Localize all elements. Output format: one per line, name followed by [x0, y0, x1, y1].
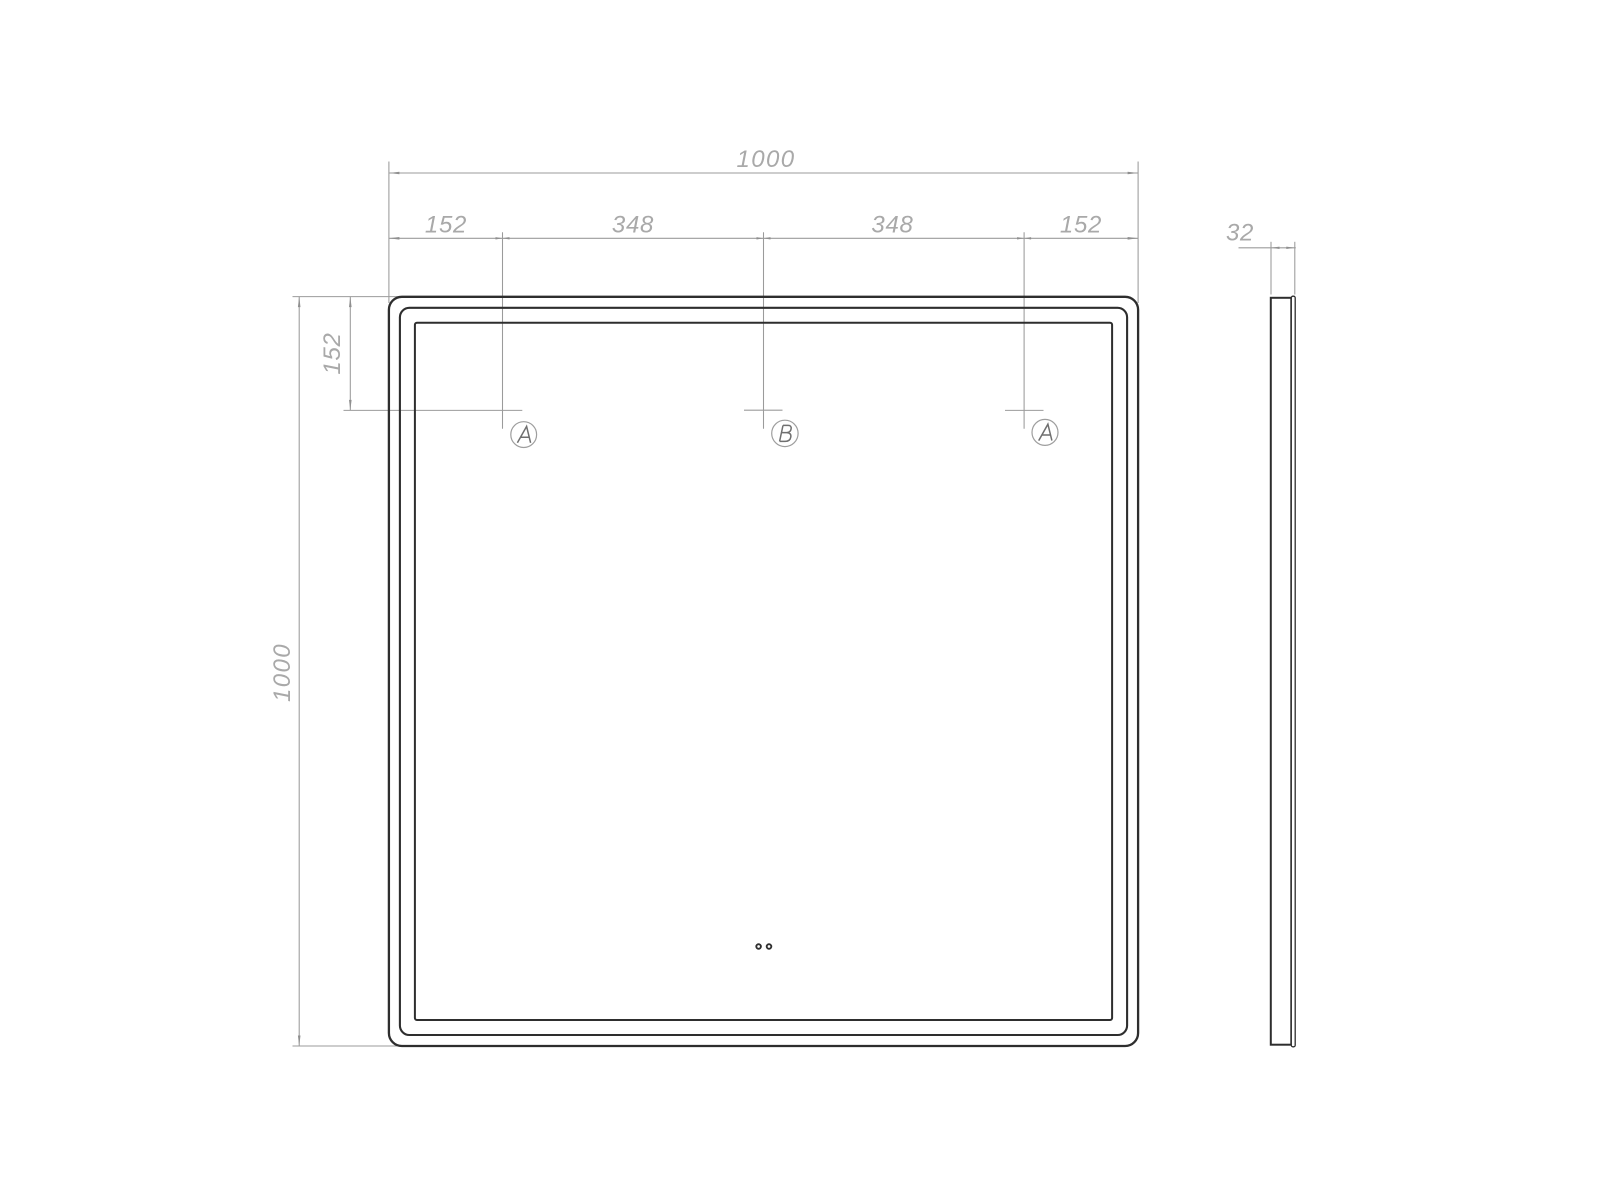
svg-text:1000: 1000: [269, 643, 296, 702]
svg-text:348: 348: [612, 211, 654, 238]
svg-text:152: 152: [425, 211, 467, 238]
svg-text:152: 152: [1060, 211, 1102, 238]
svg-text:32: 32: [1226, 220, 1254, 247]
svg-text:1000: 1000: [737, 146, 796, 173]
svg-text:348: 348: [871, 211, 913, 238]
svg-text:152: 152: [319, 332, 346, 374]
